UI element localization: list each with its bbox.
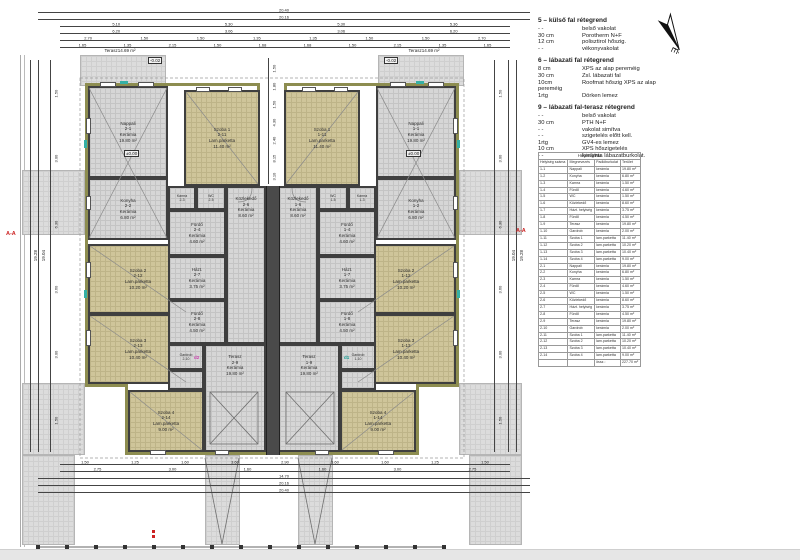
room-label: Fürdő1-8Kerámia4.50 m²: [320, 302, 374, 342]
room-kozlekedo-left: Közlekedő2-6Kerámia8.60 m²: [226, 186, 266, 344]
room-kozlekedo-right: Közlekedő1-6Kerámia8.60 m²: [278, 186, 318, 344]
room-label: WC1-5: [320, 188, 346, 208]
legend-table: - -belső vakolat30 cmPorotherm N+F12 cmp…: [538, 26, 626, 52]
room-hazt-left: Házt.2-7Kerámia3.75 m²: [168, 256, 226, 300]
room-schedule-table: Helyiséglista Helyiség számaMegnevezésPa…: [538, 152, 641, 367]
room-label: Közlekedő1-6Kerámia8.60 m²: [280, 188, 316, 342]
terrace-label-left: Terasz14.69 m²: [100, 48, 140, 53]
room-label: WC2-5: [198, 188, 224, 208]
terrace-label-right: Terasz14.69 m²: [404, 48, 444, 53]
room-kamra-right: Kamra1-3: [348, 186, 376, 210]
party-wall: [266, 186, 280, 455]
insulation-strip: [416, 387, 419, 452]
legend-section-6: 6 – lábazati fal rétegrend 8 cmXPS az al…: [538, 57, 668, 99]
window-marker: [215, 450, 229, 455]
window-marker: [315, 450, 329, 455]
room-furdo1-left: Fürdő2-4Kerámia4.60 m²: [168, 210, 226, 256]
room-label: Nappali1-1Kerámia19.80 m²: [378, 88, 454, 176]
red-stamp: [152, 530, 155, 533]
waterproofing-mark: [457, 140, 460, 148]
dim-col-left-total-2: 19.04: [38, 60, 47, 452]
waterproofing-mark: [416, 81, 424, 84]
insulation-strip: [416, 384, 459, 387]
room-furdo2-left: Fürdő2-8Kerámia4.50 m²: [168, 300, 226, 344]
section-marker-right: A-A: [516, 229, 526, 234]
drawing-sheet: Nappali2-1Kerámia19.80 m² Konyha2-2Kerám…: [0, 0, 800, 560]
room-konyha-left: Konyha2-2Kerámia6.80 m²: [88, 178, 168, 240]
room-label: Szoba 41-14Lam.parketta9.00 m²: [342, 392, 414, 450]
waterproofing-mark: [120, 81, 128, 84]
window-marker: [138, 82, 154, 87]
legend-title: 9 – lábazati fal-terasz rétegrend: [538, 104, 668, 111]
room-furdo1-right: Fürdő1-4Kerámia4.60 m²: [318, 210, 376, 256]
room-terasz-left: Terasz2-9Kerámia19.80 m²: [204, 344, 266, 452]
dim-row-bottom-5: 20.40: [38, 492, 530, 497]
insulation-strip: [125, 452, 266, 455]
dim-col-right-total-2: 19.28: [516, 60, 525, 452]
room-label: Szoba 11-11Lam.parketta11.40 m²: [286, 92, 358, 184]
level-marker-terrace-left: -0.02: [148, 57, 162, 64]
room-szoba1-right: Szoba 11-11Lam.parketta11.40 m²: [284, 90, 360, 186]
window-marker: [378, 450, 394, 455]
room-wc-right: WC1-5: [318, 186, 348, 210]
room-szoba1-left: Szoba 12-11Lam.parketta11.40 m²: [184, 90, 260, 186]
insulation-strip: [278, 452, 419, 455]
room-label: Nappali2-1Kerámia19.80 m²: [90, 88, 166, 176]
room-wc-left: WC2-5: [196, 186, 226, 210]
room-label: Kamra1-3: [350, 188, 374, 208]
boundary-line: [20, 55, 21, 547]
room-konyha-right: Konyha1-2Kerámia6.80 m²: [376, 178, 456, 240]
room-label: Fürdő2-4Kerámia4.60 m²: [170, 212, 224, 254]
room-label: Házt.1-7Kerámia3.75 m²: [320, 258, 374, 298]
dim-row-bottom-1: 1.501.251.603.602.903.601.601.251.50: [60, 464, 510, 469]
dim-col-left-segs: 1.503.006.303.603.001.50: [50, 60, 61, 452]
room-label: Terasz1-9Kerámia19.80 m²: [280, 346, 338, 450]
room-kamra-left: Kamra2-3: [168, 186, 196, 210]
dim-row-top-3: 5.105.305.305.36: [60, 26, 510, 31]
room-label: Konyha1-2Kerámia6.80 m²: [378, 180, 454, 238]
room-label: Házt.2-7Kerámia3.75 m²: [170, 258, 224, 298]
level-marker-right: ±0.00: [406, 150, 421, 157]
waterproofing-mark: [457, 290, 460, 298]
room-terasz-right: Terasz1-9Kerámia19.80 m²: [278, 344, 340, 452]
room-schedule: Helyiséglista Helyiség számaMegnevezésPa…: [538, 152, 641, 367]
room-hazt-right: Házt.1-7Kerámia3.75 m²: [318, 256, 376, 300]
door-marker-d1: d1: [344, 355, 349, 360]
room-furdo2-right: Fürdő1-8Kerámia4.50 m²: [318, 300, 376, 344]
level-marker-left: ±0.00: [124, 150, 139, 157]
room-label: Kamra2-3: [170, 188, 194, 208]
room-label: Fürdő1-4Kerámia4.60 m²: [320, 212, 374, 254]
level-marker-terrace-right: -0.02: [384, 57, 398, 64]
waterproofing-mark: [84, 290, 87, 298]
window-marker: [390, 82, 406, 87]
window-marker: [428, 82, 444, 87]
dim-col-right-segs: 1.503.006.303.603.001.50: [494, 60, 505, 452]
room-label: Közlekedő2-6Kerámia8.60 m²: [228, 188, 264, 342]
waterproofing-mark: [84, 140, 87, 148]
room-label: Konyha2-2Kerámia6.80 m²: [90, 180, 166, 238]
room-label: Szoba 42-14Lam.parketta9.00 m²: [130, 392, 202, 450]
north-arrow-icon: É: [648, 8, 692, 60]
door-marker-d2: d2: [194, 355, 199, 360]
sheet-bottom-strip: [0, 549, 800, 560]
room-nappali-right: Nappali1-1Kerámia19.80 m²: [376, 86, 456, 178]
section-marker-left: A-A: [6, 232, 16, 237]
room-label: Terasz2-9Kerámia19.80 m²: [206, 346, 264, 450]
red-stamp: [152, 535, 155, 538]
legend-table: 8 cmXPS az alap pereméig30 cmZsl. lábaza…: [538, 66, 656, 99]
room-label: Fürdő2-8Kerámia4.50 m²: [170, 302, 224, 342]
dim-row-top-4: 6.203.063.066.20: [60, 33, 510, 38]
room-label: Szoba 12-11Lam.parketta11.40 m²: [186, 92, 258, 184]
room-nappali-left: Nappali2-1Kerámia19.80 m²: [88, 86, 168, 178]
dim-col-center-segs: 1.501.801.504.302.408.153.10: [268, 58, 279, 184]
insulation-strip: [85, 384, 128, 387]
room-szoba4-right: Szoba 41-14Lam.parketta9.00 m²: [340, 390, 416, 452]
window-marker: [100, 82, 116, 87]
window-marker: [150, 450, 166, 455]
room-szoba4-left: Szoba 42-14Lam.parketta9.00 m²: [128, 390, 204, 452]
